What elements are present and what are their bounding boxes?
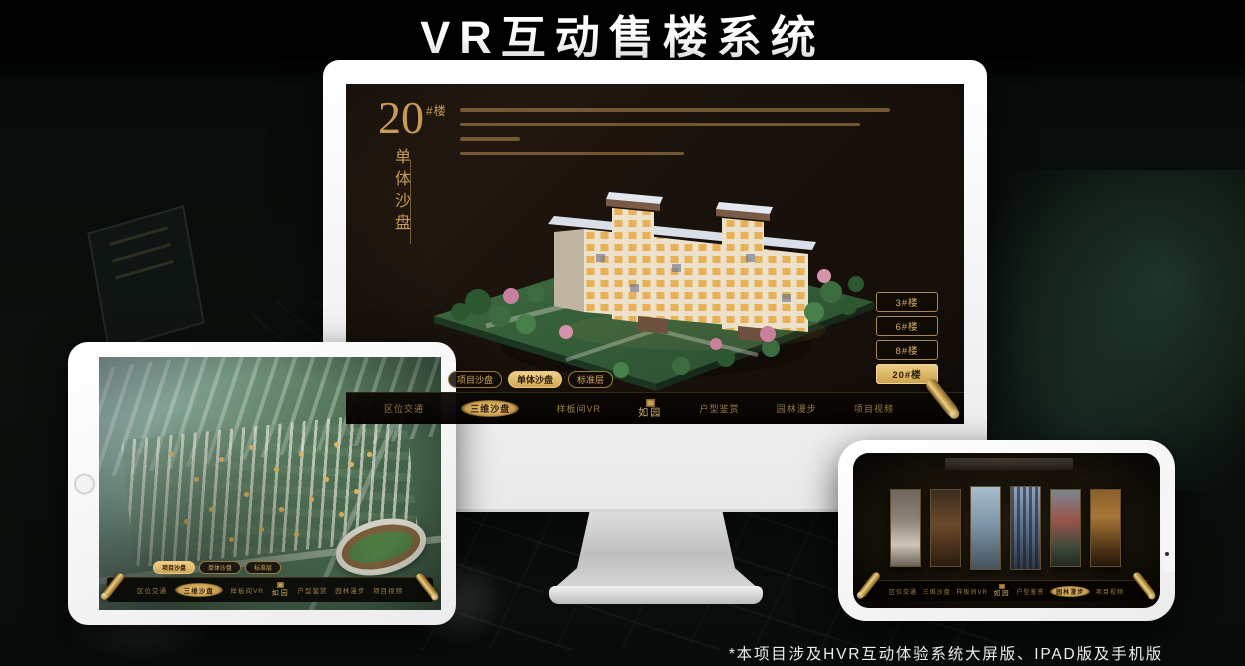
phone-ruyuan-logo: 如园 xyxy=(994,584,1011,598)
building-model-viewport[interactable] xyxy=(416,134,886,397)
phone-menu-item-garden-walk[interactable]: 园林漫步 xyxy=(1050,586,1090,597)
building-button-6[interactable]: 6#楼 xyxy=(876,316,938,336)
phone-menu-item-location-traffic[interactable]: 区位交通 xyxy=(889,587,917,596)
menu-item-location-traffic[interactable]: 区位交通 xyxy=(384,402,424,415)
text-paragraph-placeholder xyxy=(460,108,890,166)
phone-menu-item-project-video[interactable]: 项目视频 xyxy=(1096,587,1124,596)
gallery-panel-4[interactable] xyxy=(1010,486,1041,570)
seal-icon xyxy=(646,399,655,407)
ruyuan-logo: 如园 xyxy=(638,399,662,419)
building-heading: 20 #楼 单体沙盘 xyxy=(378,96,447,236)
menu-item-project-video[interactable]: 项目视频 xyxy=(854,402,894,415)
tablet-tab-standard-floor[interactable]: 标准层 xyxy=(245,561,281,574)
phone-notch xyxy=(1161,490,1175,572)
menu-item-floorplan[interactable]: 户型鉴赏 xyxy=(699,402,739,415)
main-menu-bar: 区位交通 三维沙盘 样板间VR 如园 户型鉴赏 园林漫步 项目视频 xyxy=(346,392,964,424)
tablet-tab-single-sandbox[interactable]: 单体沙盘 xyxy=(199,561,241,574)
tablet-sandbox-tabs: 项目沙盘 单体沙盘 标准层 xyxy=(153,561,281,574)
page-title: VR互动售楼系统 xyxy=(0,1,1245,66)
tablet-menu-item-3d-sandbox[interactable]: 三维沙盘 xyxy=(175,583,223,597)
tablet-home-button[interactable] xyxy=(74,473,95,494)
gallery-panel-1[interactable] xyxy=(890,489,921,567)
tablet-menu-item-model-room-vr[interactable]: 样板间VR xyxy=(230,585,264,595)
tablet-menu-item-project-video[interactable]: 项目视频 xyxy=(373,585,403,595)
gallery-panel-3[interactable] xyxy=(970,486,1001,570)
tablet-device: 项目沙盘 单体沙盘 标准层 区位交通 三维沙盘 样板间VR 如园 户型鉴赏 园林… xyxy=(68,342,456,625)
vr-sales-system-poster: VR互动售楼系统 20 #楼 单体沙盘 xyxy=(0,0,1245,666)
phone-menu-item-3d-sandbox[interactable]: 三维沙盘 xyxy=(923,587,951,596)
seal-icon xyxy=(277,582,284,588)
phone-screen: 区位交通 三维沙盘 样板间VR 如园 户型鉴赏 园林漫步 项目视频 xyxy=(853,453,1160,608)
tablet-menu-item-floorplan[interactable]: 户型鉴赏 xyxy=(297,585,327,595)
phone-menu-item-model-room-vr[interactable]: 样板间VR xyxy=(957,587,988,596)
tablet-menu-item-garden-walk[interactable]: 园林漫步 xyxy=(335,585,365,595)
entrance-gate-beam xyxy=(945,458,1073,470)
phone-menu-item-floorplan[interactable]: 户型鉴赏 xyxy=(1016,587,1044,596)
monitor-screen: 20 #楼 单体沙盘 xyxy=(346,84,964,424)
gallery-panel-6[interactable] xyxy=(1090,489,1121,567)
tablet-tab-project-sandbox[interactable]: 项目沙盘 xyxy=(153,561,195,574)
building-number-badges xyxy=(99,357,104,362)
gallery-panel-2[interactable] xyxy=(930,489,961,567)
phone-menu-bar: 区位交通 三维沙盘 样板间VR 如园 户型鉴赏 园林漫步 项目视频 xyxy=(863,580,1150,601)
building-subtitle: 单体沙盘 xyxy=(388,148,412,236)
menu-item-garden-walk[interactable]: 园林漫步 xyxy=(777,402,817,415)
monitor-stand-base xyxy=(549,586,763,604)
building-number-unit: #楼 xyxy=(426,102,447,119)
tablet-menu-item-location-traffic[interactable]: 区位交通 xyxy=(137,585,167,595)
building-number: 20 xyxy=(378,96,424,140)
gallery-panels xyxy=(890,486,1121,570)
tab-single-sandbox[interactable]: 单体沙盘 xyxy=(508,371,562,388)
menu-item-model-room-vr[interactable]: 样板间VR xyxy=(557,402,602,415)
building-selector: 3#楼 6#楼 8#楼 20#楼 xyxy=(876,292,938,384)
tablet-menu-bar: 区位交通 三维沙盘 样板间VR 如园 户型鉴赏 园林漫步 项目视频 xyxy=(107,577,433,602)
background-certificate-frame xyxy=(87,205,204,351)
building-button-8[interactable]: 8#楼 xyxy=(876,340,938,360)
sandbox-tabs: 项目沙盘 单体沙盘 标准层 xyxy=(448,371,613,388)
building-button-3[interactable]: 3#楼 xyxy=(876,292,938,312)
gallery-panel-5[interactable] xyxy=(1050,489,1081,567)
tab-standard-floor[interactable]: 标准层 xyxy=(568,371,613,388)
footnote-text: *本项目涉及HVR互动体验系统大屏版、IPAD版及手机版 xyxy=(729,642,1163,664)
tablet-ruyuan-logo: 如园 xyxy=(272,582,290,598)
menu-item-3d-sandbox[interactable]: 三维沙盘 xyxy=(461,400,519,417)
seal-icon xyxy=(999,584,1005,589)
phone-device: 区位交通 三维沙盘 样板间VR 如园 户型鉴赏 园林漫步 项目视频 xyxy=(838,440,1175,621)
tab-project-sandbox[interactable]: 项目沙盘 xyxy=(448,371,502,388)
